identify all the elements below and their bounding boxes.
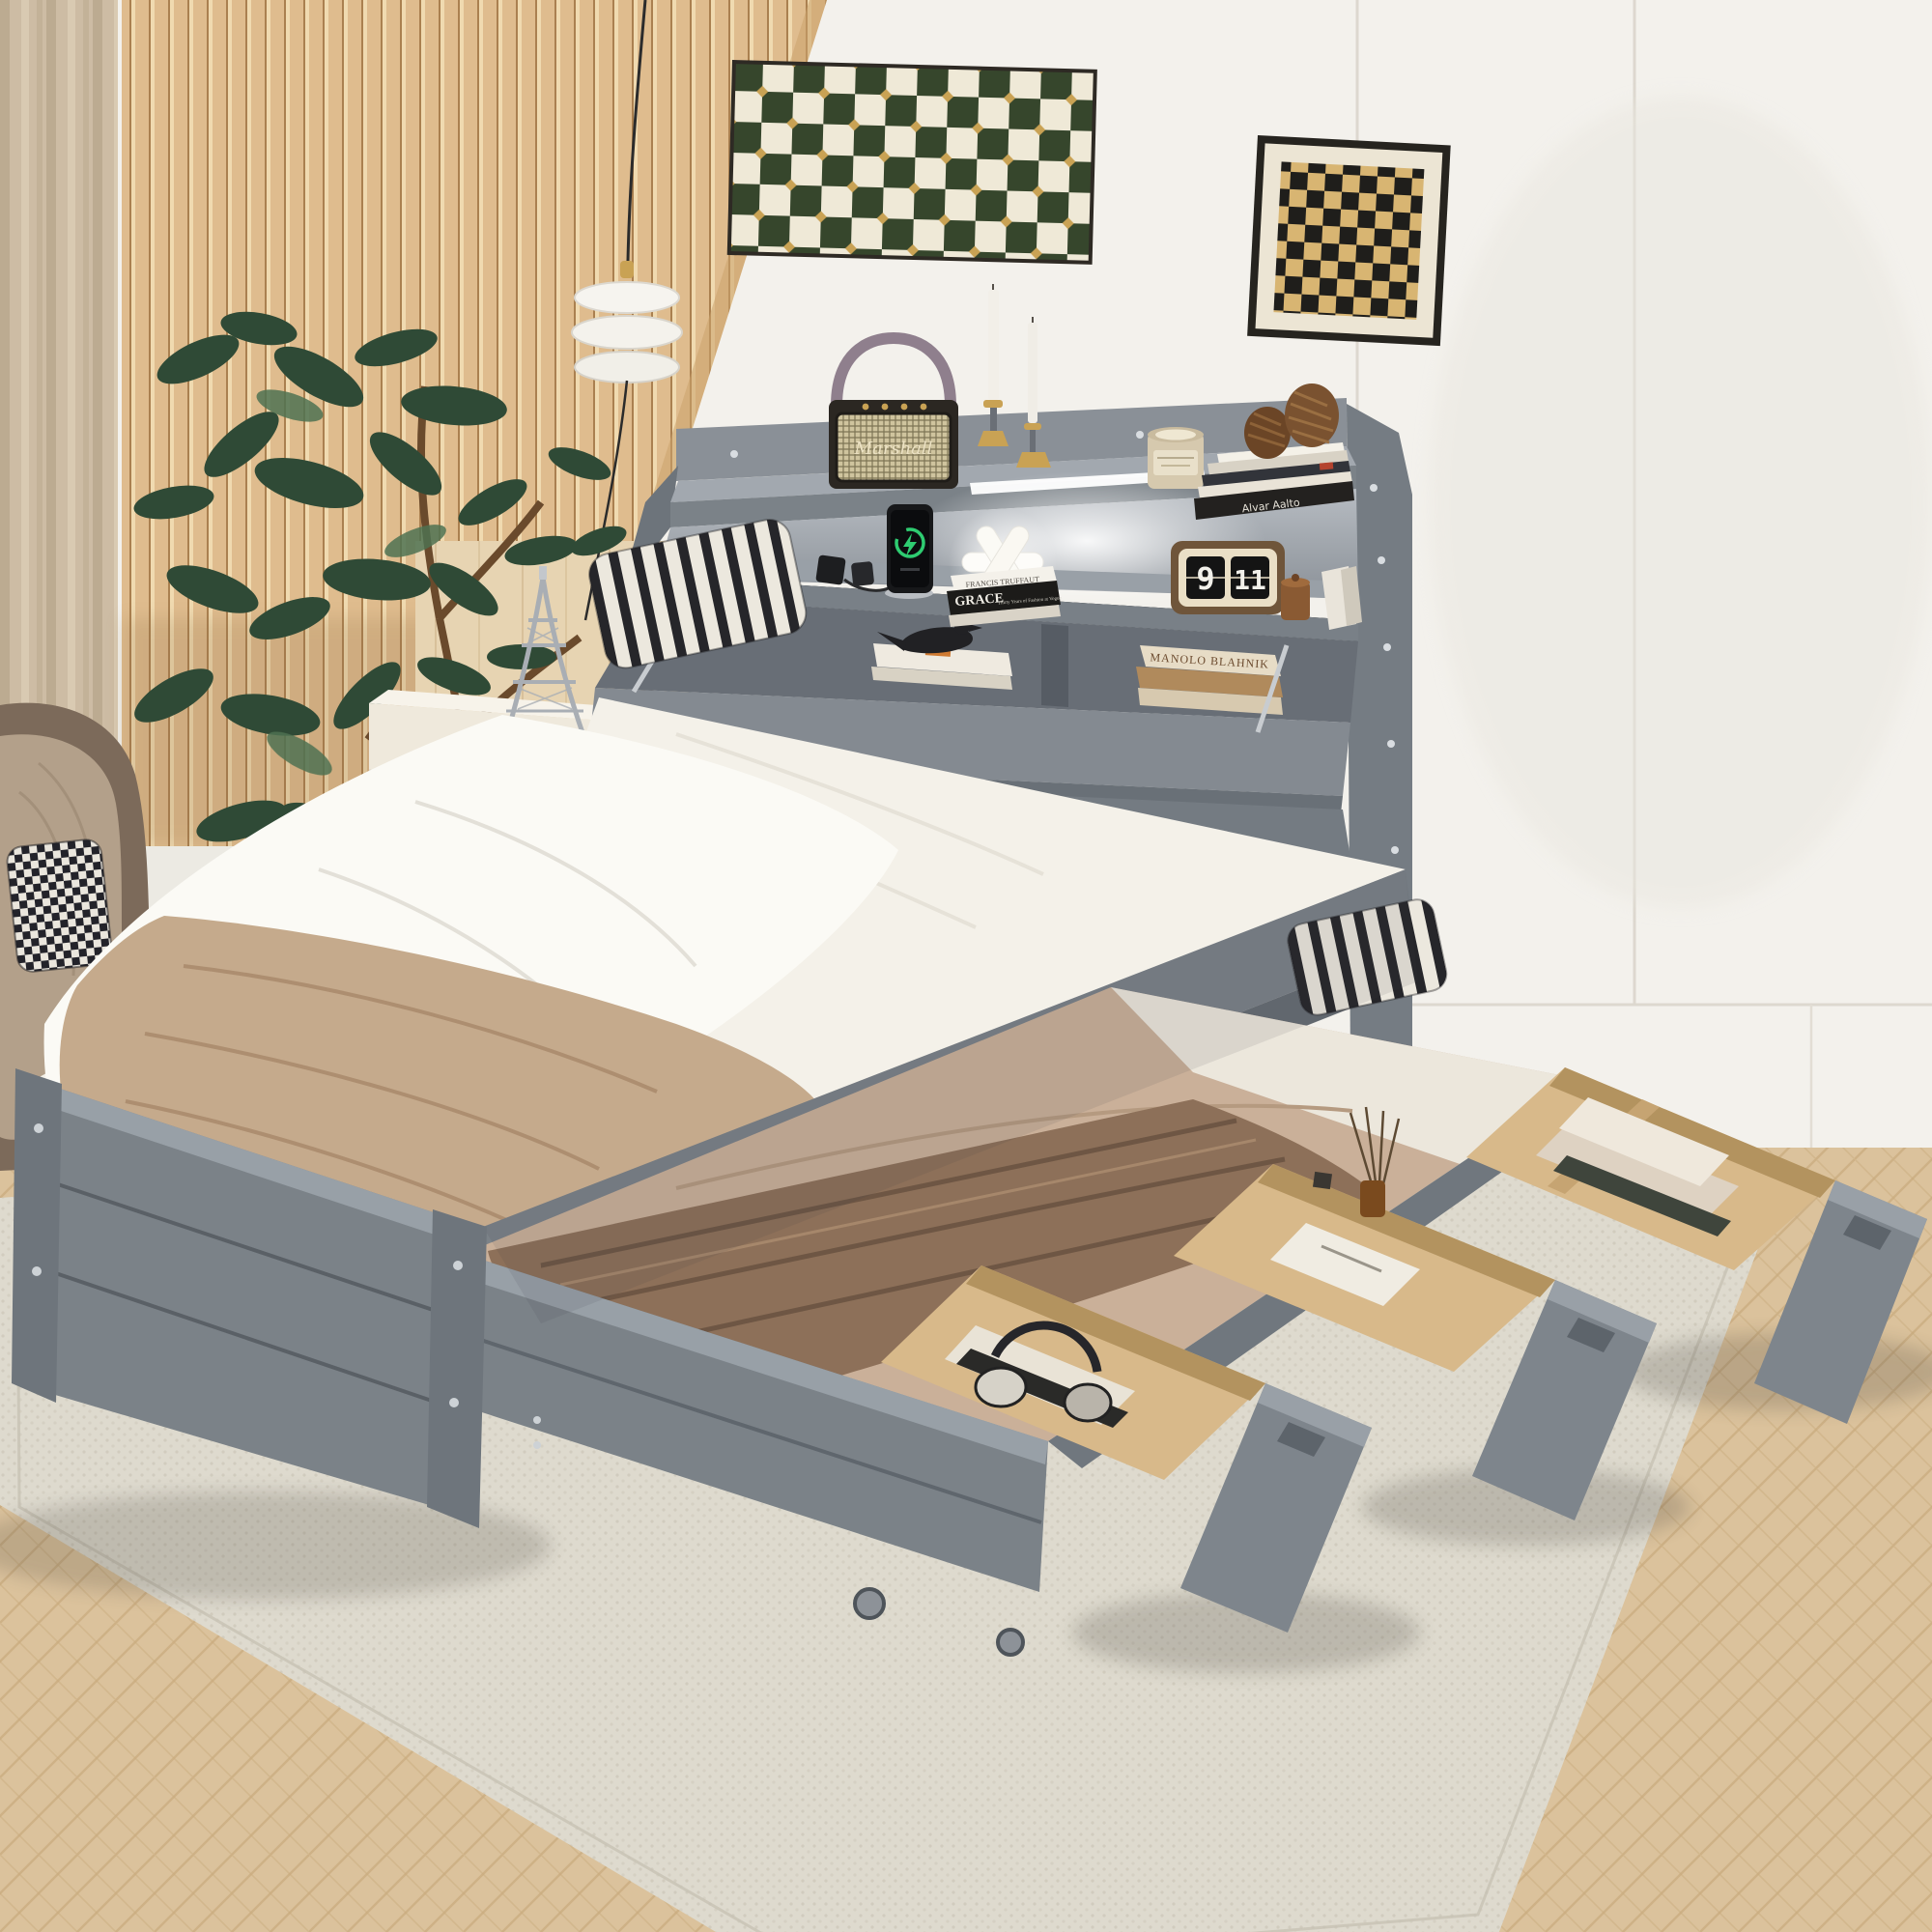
artwork-green-checker bbox=[727, 60, 1097, 265]
houndstooth-pillow bbox=[6, 838, 113, 974]
screw-dot bbox=[32, 1266, 42, 1276]
screw-dot bbox=[533, 1441, 541, 1449]
lamp-cap bbox=[620, 261, 634, 278]
canister-knob bbox=[1292, 574, 1299, 582]
speaker-logo: Marshall bbox=[854, 439, 933, 459]
caster-wheel bbox=[998, 1630, 1023, 1655]
screw-dot bbox=[453, 1261, 463, 1270]
taper-candle bbox=[1028, 323, 1037, 423]
small-box bbox=[1313, 1172, 1332, 1189]
lamp-disc bbox=[575, 282, 679, 313]
taper-candle bbox=[988, 290, 999, 400]
power-adapter bbox=[851, 561, 874, 586]
screw-dot bbox=[34, 1123, 43, 1133]
reed-diffuser-bottle bbox=[1360, 1180, 1385, 1217]
candle-jar bbox=[1148, 427, 1204, 489]
clock-minute-digit: 11 bbox=[1234, 564, 1266, 596]
lamp-disc bbox=[572, 316, 682, 349]
lamp-disc bbox=[575, 352, 679, 383]
screw-dot bbox=[449, 1398, 459, 1407]
wooden-canister bbox=[1281, 574, 1310, 620]
grace-book-stack: FRANCIS TRUFFAUT GRACE Thirty Years of F… bbox=[947, 566, 1063, 627]
bedroom-scene: MANOLO BLAHNIK Marshall bbox=[0, 0, 1932, 1932]
caster-wheel bbox=[855, 1589, 884, 1618]
headphone-earcup bbox=[1065, 1384, 1111, 1421]
headphone-earcup bbox=[976, 1368, 1026, 1406]
book-sticker bbox=[1320, 462, 1334, 469]
footboard-post-left bbox=[12, 1068, 62, 1403]
screw-dot bbox=[533, 1416, 541, 1424]
scene-canvas: MANOLO BLAHNIK Marshall bbox=[0, 0, 1932, 1932]
power-adapter bbox=[815, 554, 846, 585]
compartment-divider bbox=[1041, 624, 1068, 707]
clock-hour-digit: 9 bbox=[1196, 560, 1214, 597]
artwork-black-checker bbox=[1247, 135, 1451, 346]
manolo-book-stack: MANOLO BLAHNIK bbox=[1136, 645, 1283, 715]
phone-text-line bbox=[900, 568, 920, 571]
art-canvas bbox=[731, 64, 1094, 261]
footboard-post-right bbox=[427, 1209, 487, 1528]
flip-clock: 9 11 bbox=[1171, 541, 1285, 614]
wall-shading bbox=[1430, 97, 1932, 908]
jar-label bbox=[1153, 450, 1198, 475]
art-canvas bbox=[1273, 161, 1424, 320]
